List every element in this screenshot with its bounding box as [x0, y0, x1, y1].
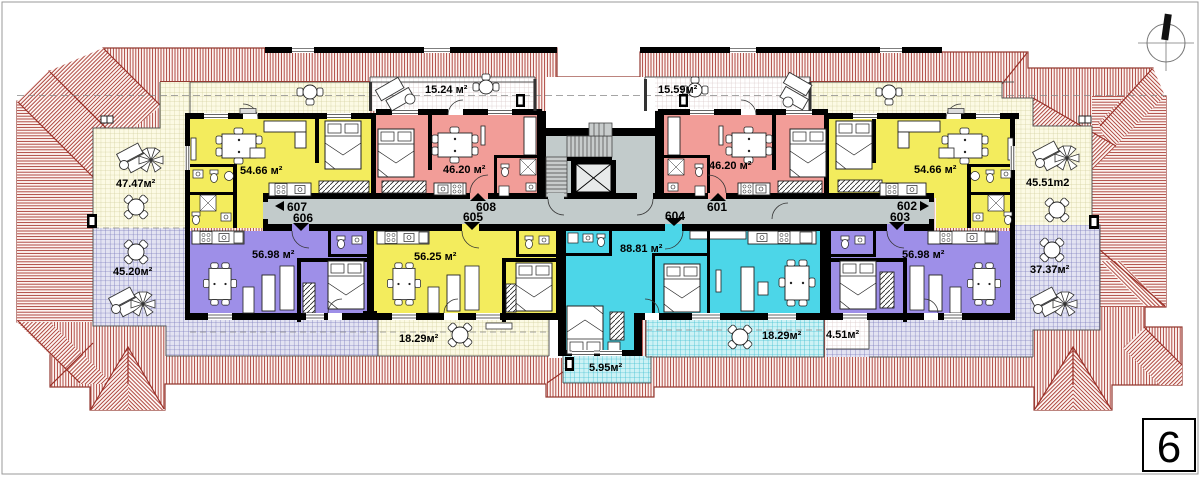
svg-text:45.51m2: 45.51m2 — [1026, 177, 1069, 189]
svg-text:5.95м²: 5.95м² — [589, 362, 623, 374]
svg-text:56.98 м²: 56.98 м² — [902, 249, 945, 261]
svg-text:54.66 м²: 54.66 м² — [240, 165, 283, 177]
svg-text:47.47м²: 47.47м² — [116, 178, 156, 190]
svg-text:37.37м²: 37.37м² — [1030, 264, 1070, 276]
svg-text:56.98 м²: 56.98 м² — [252, 249, 295, 261]
svg-text:45.20м²: 45.20м² — [113, 266, 153, 278]
svg-text:46.20 м²: 46.20 м² — [709, 160, 752, 172]
svg-text:88.81 м²: 88.81 м² — [620, 243, 663, 255]
svg-text:603: 603 — [890, 210, 910, 224]
svg-text:56.25 м²: 56.25 м² — [414, 251, 457, 263]
svg-text:4.51м²: 4.51м² — [826, 329, 860, 341]
svg-text:18.29м²: 18.29м² — [399, 333, 439, 345]
svg-text:601: 601 — [707, 200, 727, 214]
svg-text:605: 605 — [463, 210, 483, 224]
svg-text:15.59м²: 15.59м² — [658, 84, 698, 96]
svg-text:606: 606 — [293, 211, 313, 225]
svg-text:46.20 м²: 46.20 м² — [443, 164, 486, 176]
svg-text:18.29м²: 18.29м² — [762, 330, 802, 342]
svg-text:6: 6 — [1157, 423, 1181, 472]
svg-text:15.24 м²: 15.24 м² — [425, 84, 468, 96]
svg-text:54.66 м²: 54.66 м² — [914, 164, 957, 176]
